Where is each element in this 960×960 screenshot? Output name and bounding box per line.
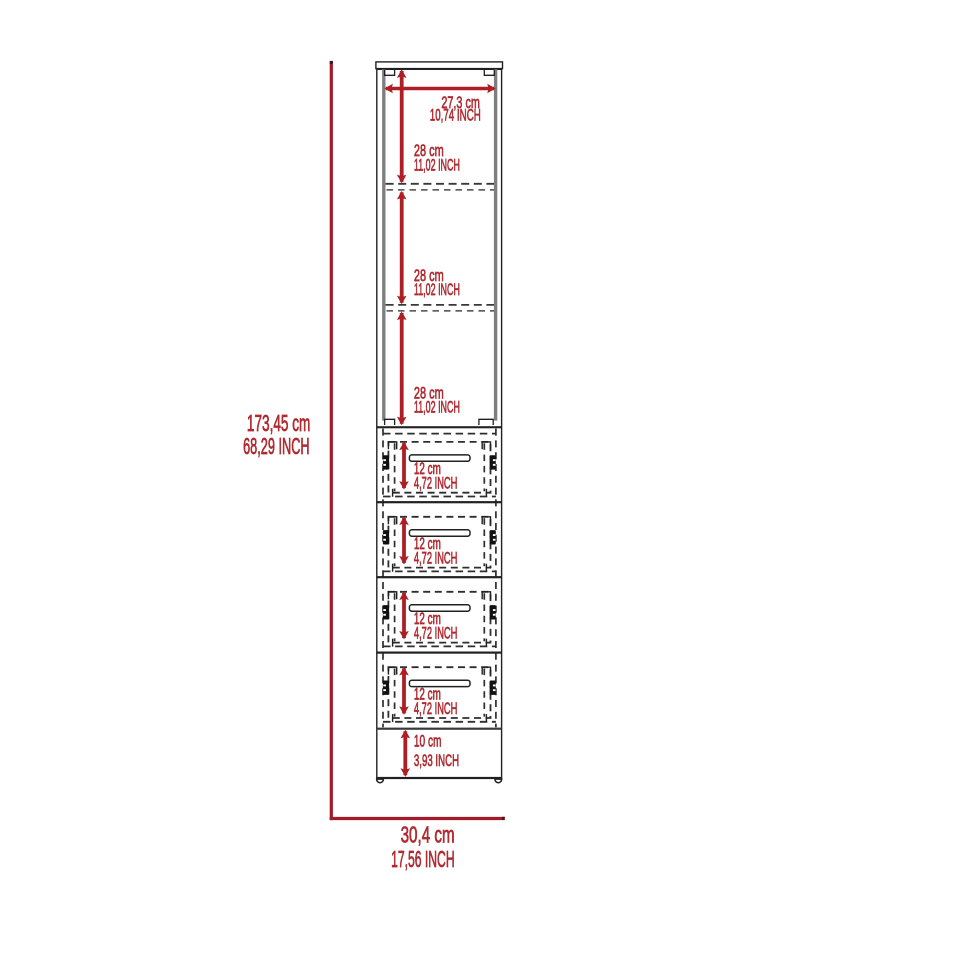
svg-text:3,93 INCH: 3,93 INCH (414, 752, 459, 770)
svg-text:11,02 INCH: 11,02 INCH (414, 281, 460, 299)
svg-text:11,02 INCH: 11,02 INCH (414, 399, 460, 417)
svg-text:4,72 INCH: 4,72 INCH (414, 700, 458, 718)
svg-text:10,74 INCH: 10,74 INCH (430, 107, 481, 125)
svg-text:30,4 cm: 30,4 cm (401, 822, 455, 848)
svg-text:17,56 INCH: 17,56 INCH (391, 846, 455, 872)
svg-text:10 cm: 10 cm (414, 733, 442, 751)
svg-text:11,02 INCH: 11,02 INCH (414, 156, 460, 174)
svg-text:68,29 INCH: 68,29 INCH (243, 433, 310, 459)
svg-text:4,72 INCH: 4,72 INCH (414, 475, 458, 493)
svg-text:4,72 INCH: 4,72 INCH (414, 625, 458, 643)
svg-text:173,45 cm: 173,45 cm (247, 410, 311, 436)
svg-text:4,72 INCH: 4,72 INCH (414, 550, 458, 568)
